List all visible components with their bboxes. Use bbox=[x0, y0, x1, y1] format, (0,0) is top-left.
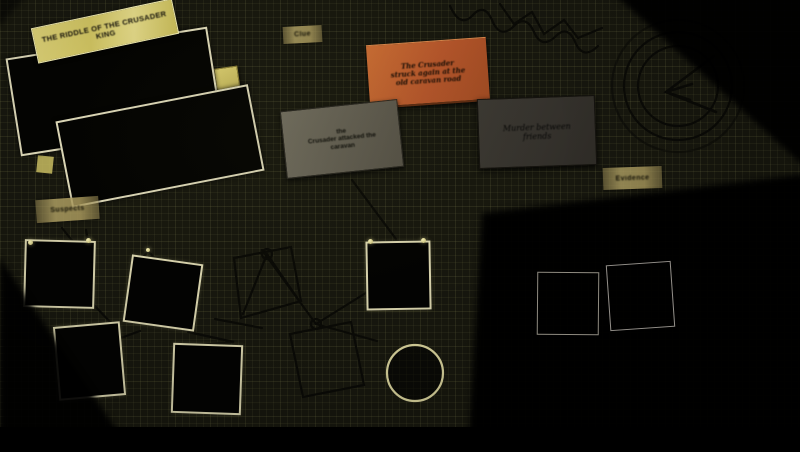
outline-photo-slot-2[interactable] bbox=[606, 261, 675, 331]
outline-photo-slot-1[interactable] bbox=[537, 272, 600, 336]
shadow-top-left-corner bbox=[0, 0, 26, 30]
bottom-black-bar bbox=[0, 427, 800, 452]
shadow-bottom-left bbox=[0, 258, 132, 452]
shadow-top-right bbox=[614, 0, 800, 168]
shadow-overlay-layer bbox=[0, 0, 800, 452]
evidence-board: THE RIDDLE OF THE CRUSADER KING The Crus… bbox=[0, 0, 800, 452]
